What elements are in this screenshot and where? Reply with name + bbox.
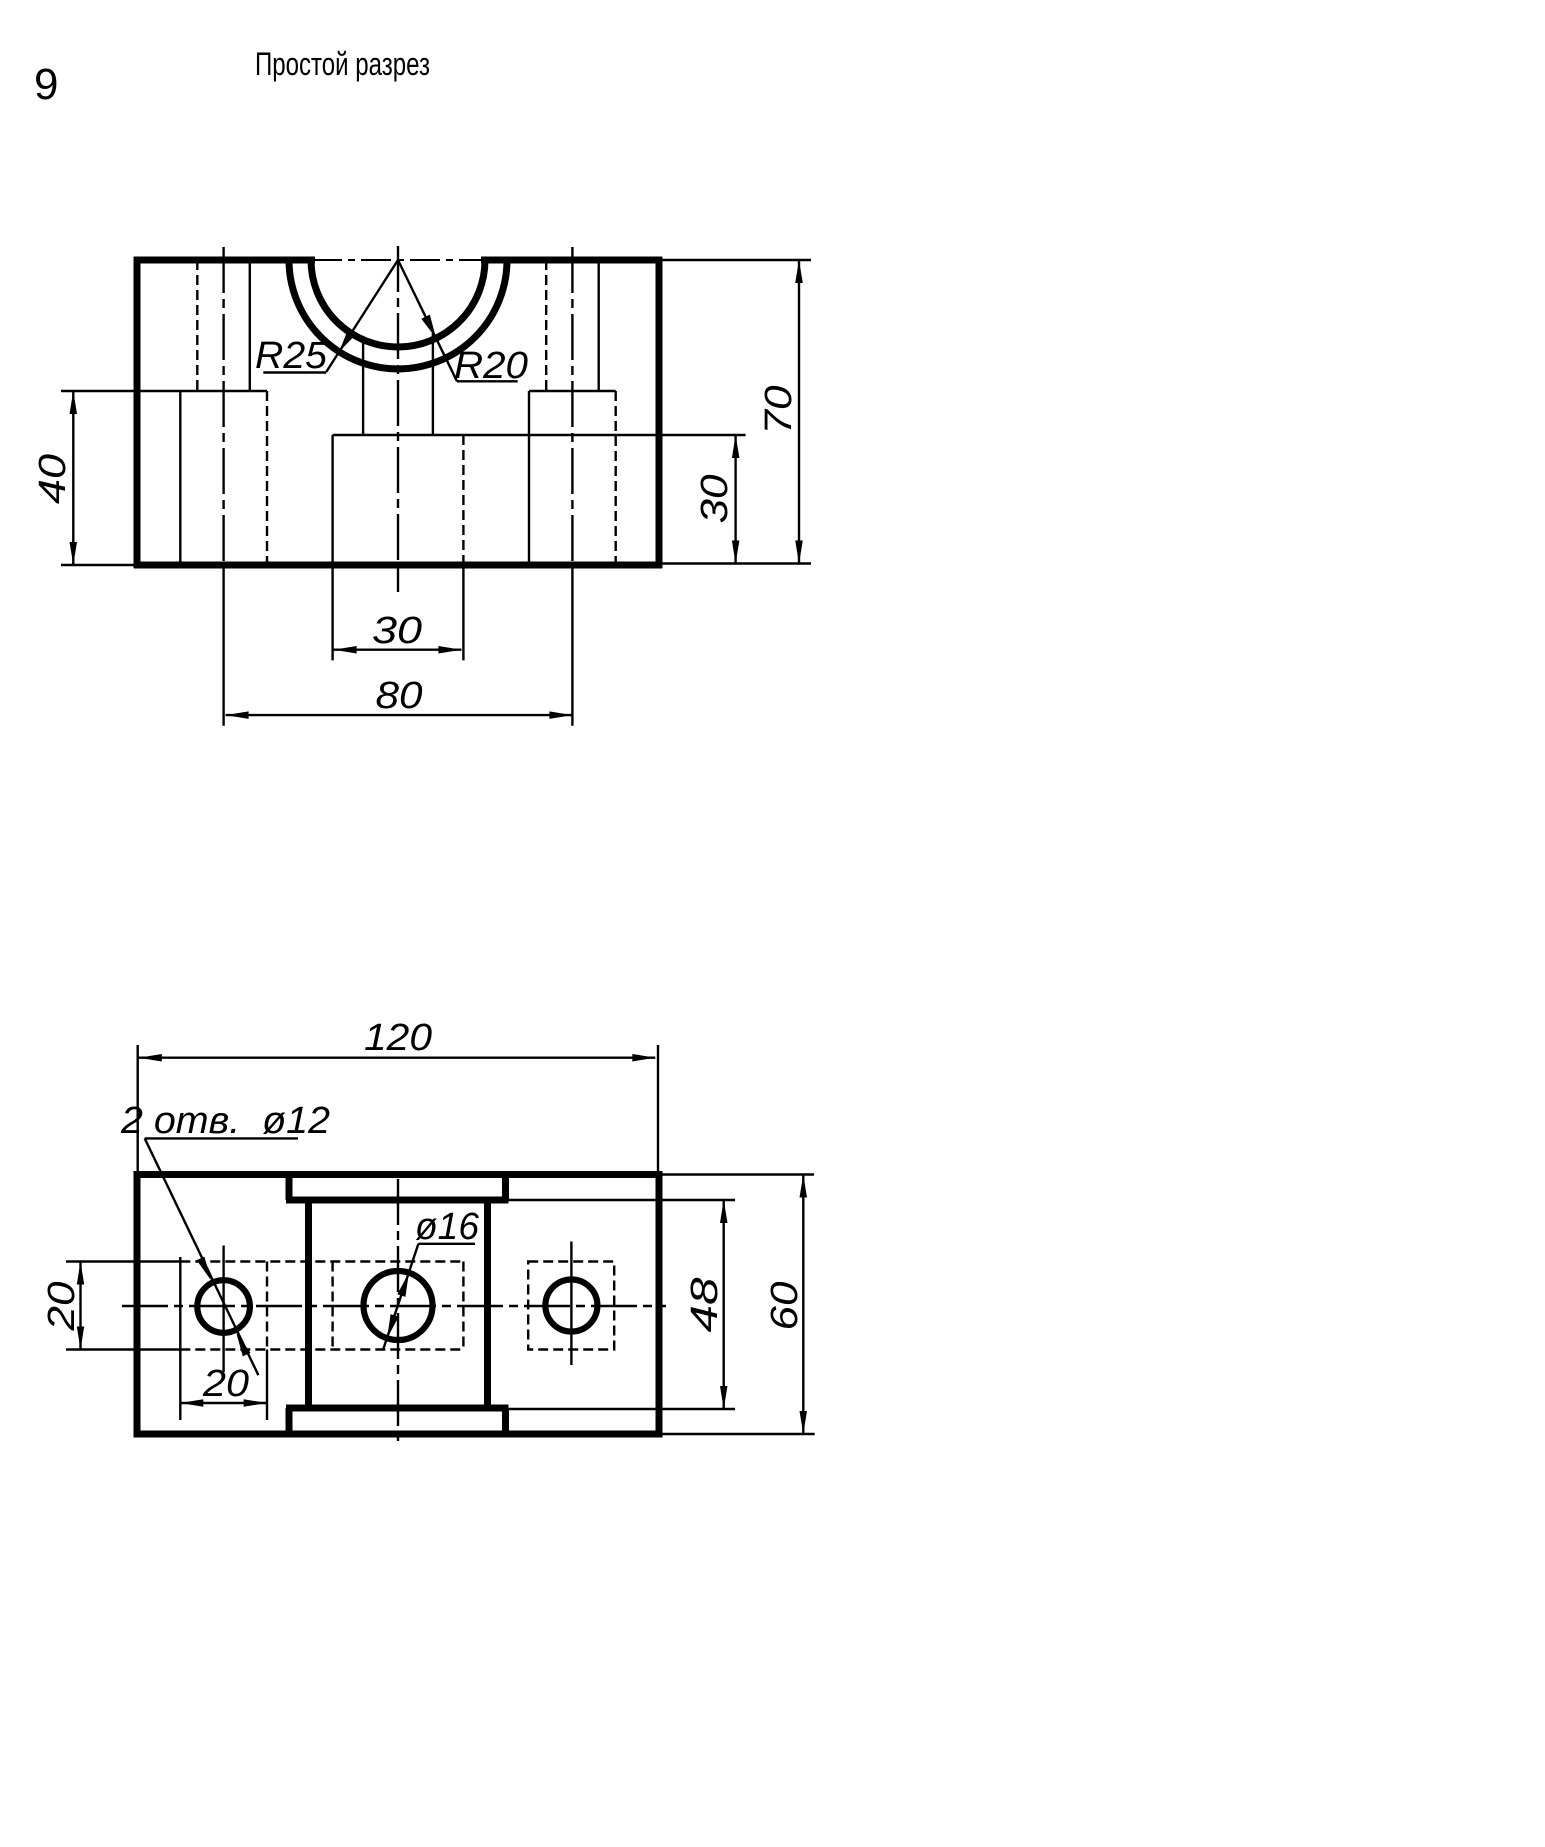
svg-text:48: 48 xyxy=(684,1278,726,1333)
svg-text:Простой разрез: Простой разрез xyxy=(255,46,430,82)
svg-text:20: 20 xyxy=(41,1282,83,1332)
svg-text:120: 120 xyxy=(364,1017,432,1059)
svg-text:40: 40 xyxy=(32,454,74,504)
svg-text:30: 30 xyxy=(372,610,422,652)
svg-text:R20: R20 xyxy=(454,345,528,387)
svg-text:70: 70 xyxy=(758,386,800,435)
svg-text:20: 20 xyxy=(202,1363,249,1405)
svg-text:60: 60 xyxy=(764,1282,806,1331)
svg-text:30: 30 xyxy=(694,475,736,524)
svg-text:R25: R25 xyxy=(255,335,328,377)
svg-text:2 отв. ø12: 2 отв. ø12 xyxy=(120,1100,330,1142)
svg-text:9: 9 xyxy=(34,60,58,109)
svg-text:80: 80 xyxy=(376,675,423,717)
svg-text:ø16: ø16 xyxy=(415,1206,480,1248)
